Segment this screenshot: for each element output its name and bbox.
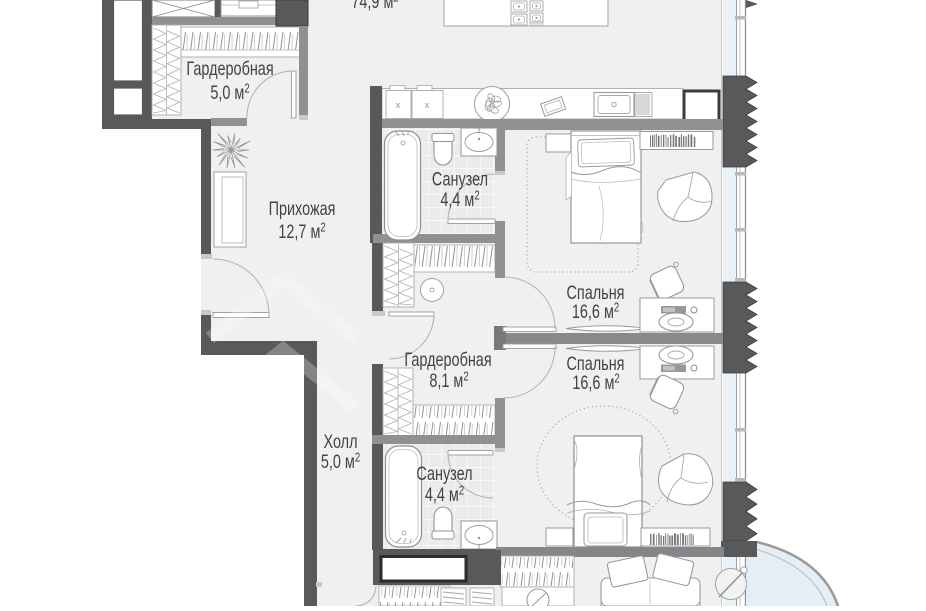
svg-text:74,9 м2: 74,9 м2	[351, 0, 398, 13]
svg-text:5,0 м2: 5,0 м2	[210, 82, 249, 103]
svg-text:Санузел: Санузел	[432, 169, 488, 190]
svg-text:x: x	[396, 100, 401, 111]
svg-text:16,6 м2: 16,6 м2	[572, 301, 619, 322]
svg-text:12,7 м2: 12,7 м2	[278, 221, 325, 242]
svg-text:5,0 м2: 5,0 м2	[321, 451, 360, 472]
svg-text:8,1 м2: 8,1 м2	[429, 370, 468, 391]
svg-text:16,6 м2: 16,6 м2	[572, 372, 619, 393]
svg-text:4,4 м2: 4,4 м2	[425, 484, 464, 505]
svg-text:x: x	[425, 100, 430, 111]
svg-text:Санузел: Санузел	[416, 463, 472, 484]
svg-text:Гардеробная: Гардеробная	[404, 349, 491, 370]
svg-text:4,4 м2: 4,4 м2	[440, 189, 479, 210]
svg-text:Гардеробная: Гардеробная	[186, 58, 273, 79]
svg-text:Прихожая: Прихожая	[269, 198, 336, 219]
svg-text:Холл: Холл	[323, 431, 357, 452]
